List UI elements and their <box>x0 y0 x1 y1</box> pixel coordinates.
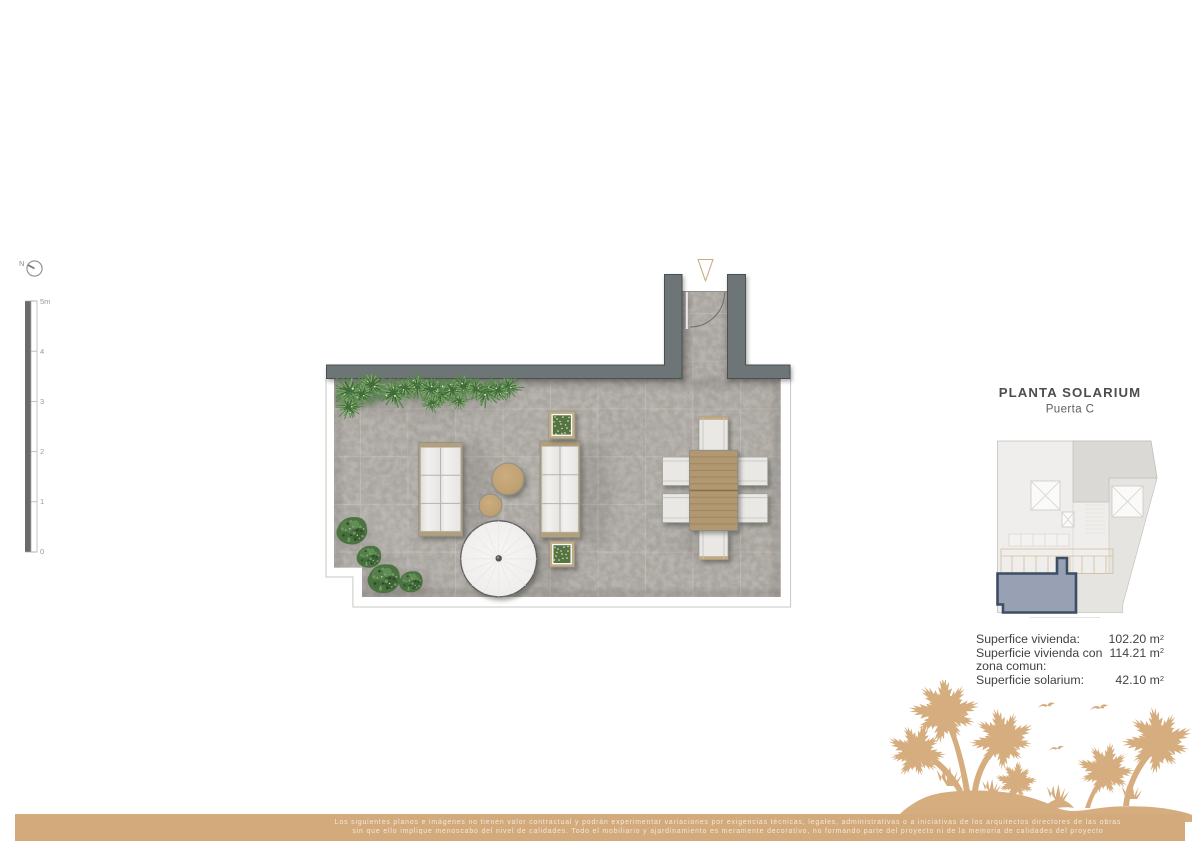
svg-text:0: 0 <box>40 547 44 556</box>
svg-text:1: 1 <box>40 497 44 506</box>
svg-text:3: 3 <box>40 397 44 406</box>
svg-text:2: 2 <box>40 447 44 456</box>
svg-text:Puerta C: Puerta C <box>1046 404 1095 416</box>
svg-text:5m: 5m <box>40 297 50 306</box>
svg-text:PLANTA SOLARIUM: PLANTA SOLARIUM <box>999 385 1142 400</box>
svg-text:N: N <box>19 259 24 268</box>
svg-text:4: 4 <box>40 347 44 356</box>
